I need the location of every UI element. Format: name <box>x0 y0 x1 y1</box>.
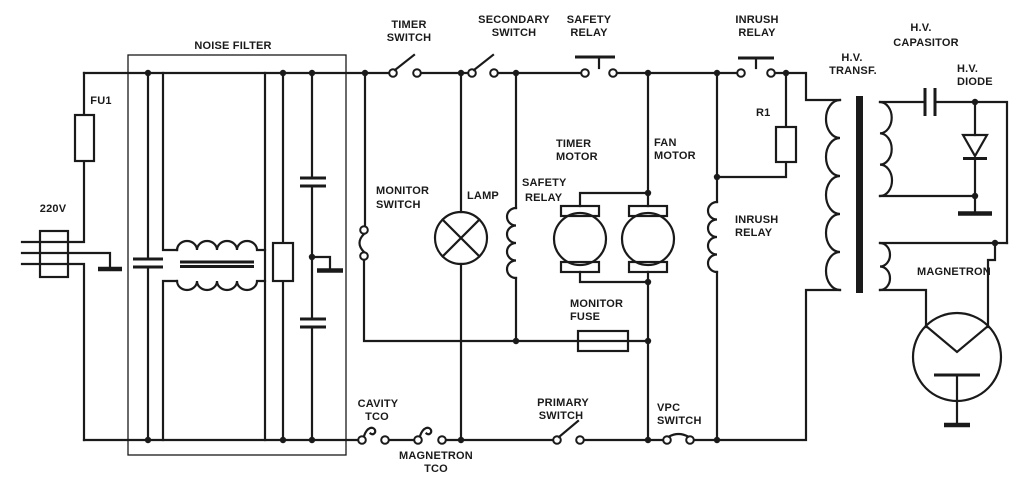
hv-diode: H.V. DIODE <box>957 63 993 214</box>
hv-transformer-label-1: H.V. <box>841 52 862 64</box>
hv-capacitor: H.V. CAPASITOR <box>880 22 1007 243</box>
junction-dot <box>645 338 651 344</box>
junction-dot <box>362 70 368 76</box>
secondary-switch: SECONDARY SWITCH <box>468 14 550 77</box>
motor-mount-top <box>629 206 667 216</box>
magnetron: MAGNETRON <box>880 243 1007 425</box>
choke-bottom-lead <box>163 281 177 440</box>
schematic-page: 220V FU1 NOISE FILTER TIMER SWITCH <box>0 0 1024 483</box>
hv-diode-label-1: H.V. <box>957 63 978 75</box>
magnetron-tco-label-2: TCO <box>424 463 448 475</box>
magnetron-tco-label-1: MAGNETRON <box>399 450 473 462</box>
vpc-switch: VPC SWITCH <box>657 402 702 444</box>
hv-transformer-label-2: TRANSF. <box>829 65 877 77</box>
monitor-fuse-label-1: MONITOR <box>570 298 623 310</box>
fan-motor: FAN MOTOR <box>622 73 696 440</box>
relay-terminal <box>767 69 775 77</box>
tco-blade <box>420 428 431 436</box>
power-input: 220V FU1 <box>22 73 122 440</box>
junction-dot <box>280 437 286 443</box>
hv-diode-label-2: DIODE <box>957 76 993 88</box>
monitor-switch-label-2: SWITCH <box>376 199 421 211</box>
junction-dot <box>280 70 286 76</box>
tco-blade <box>364 428 375 436</box>
junction-dot <box>309 70 315 76</box>
coil-icon <box>507 208 516 278</box>
noise-filter: NOISE FILTER <box>128 40 346 455</box>
cavity-tco-label-1: CAVITY <box>358 398 399 410</box>
monitor-fuse-label-2: FUSE <box>570 311 600 323</box>
inrush-relay-label-2: RELAY <box>738 27 776 39</box>
magnetron-label: MAGNETRON <box>917 266 991 278</box>
cavity-tco-label-2: TCO <box>365 411 389 423</box>
filament-winding <box>880 243 890 290</box>
hv-secondary-winding <box>880 102 892 196</box>
junction-dot <box>458 437 464 443</box>
safety-relay-label-2: RELAY <box>570 27 608 39</box>
choke-top-winding <box>177 241 265 250</box>
switch-blade <box>395 55 414 70</box>
timer-motor-icon <box>554 213 606 265</box>
inrush-relay-label-1: INRUSH <box>735 14 778 26</box>
hv-capacitor-label-1: H.V. <box>910 22 931 34</box>
switch-terminal <box>438 436 446 444</box>
junction-dot <box>645 70 651 76</box>
safety-coil-label-1: SAFETY <box>522 177 567 189</box>
switch-blade <box>474 55 493 70</box>
fuse-label: FU1 <box>90 95 111 107</box>
noise-filter-label: NOISE FILTER <box>194 40 271 52</box>
junction-dot <box>645 437 651 443</box>
lamp-label: LAMP <box>467 190 499 202</box>
fan-motor-icon <box>622 213 674 265</box>
junction-dot <box>972 99 978 105</box>
safety-relay-label-1: SAFETY <box>567 14 612 26</box>
timer-switch-label-2: SWITCH <box>387 32 432 44</box>
magnetron-right-lead <box>988 243 995 327</box>
switch-blade <box>669 434 688 437</box>
secondary-switch-label-2: SWITCH <box>492 27 537 39</box>
capacitor-icon <box>133 259 163 267</box>
motor-mount-top <box>561 206 599 216</box>
primary-switch-label-1: PRIMARY <box>537 397 589 409</box>
timer-switch-label-1: TIMER <box>391 19 426 31</box>
timer-motor-label-1: TIMER <box>556 138 591 150</box>
timer-motor-label-2: MOTOR <box>556 151 598 163</box>
vpc-switch-label-1: VPC <box>657 402 680 414</box>
monitor-switch-label-1: MONITOR <box>376 185 429 197</box>
lamp-cross <box>443 220 480 257</box>
choke-core <box>180 262 254 267</box>
junction-dot <box>145 437 151 443</box>
hv-transformer: H.V. TRANSF. <box>786 52 975 293</box>
magnetron-left-lead <box>880 290 926 327</box>
cap-lead-right <box>937 102 1007 243</box>
hv-capacitor-label-2: CAPASITOR <box>893 37 959 49</box>
r1-label: R1 <box>756 107 770 119</box>
junction-dot <box>309 437 315 443</box>
circuit-diagram: 220V FU1 NOISE FILTER TIMER SWITCH <box>0 0 1024 483</box>
neutral-down <box>68 264 84 440</box>
junction-dot <box>145 70 151 76</box>
relay-terminal <box>609 69 617 77</box>
monitor-fuse: MONITOR FUSE <box>570 298 628 351</box>
switch-terminal <box>576 436 584 444</box>
primary-winding <box>826 100 840 290</box>
inrush-coil-label-2: RELAY <box>735 227 773 239</box>
lamp: LAMP <box>435 73 499 440</box>
switch-blade <box>559 421 578 437</box>
junction-dot <box>714 437 720 443</box>
switch-terminal <box>381 436 389 444</box>
voltage-label: 220V <box>40 203 67 215</box>
relay-terminal <box>581 69 589 77</box>
relay-terminal <box>737 69 745 77</box>
choke-top-lead <box>163 73 177 250</box>
junction-dot <box>972 193 978 199</box>
junction-dot <box>645 279 651 285</box>
choke-bottom-winding <box>177 281 265 290</box>
safety-relay-contact: SAFETY RELAY <box>567 14 617 77</box>
motor-mount-bottom <box>561 262 599 272</box>
switch-terminal <box>490 69 498 77</box>
fuse-body <box>75 115 94 161</box>
transformer-core <box>856 96 863 293</box>
inrush-relay-contact: INRUSH RELAY <box>735 14 778 77</box>
safety-relay-coil: SAFETY RELAY <box>507 73 567 341</box>
ycap-top-icon <box>300 178 326 186</box>
junction-dot <box>714 174 720 180</box>
filter-resistor-body <box>273 243 293 281</box>
coil-icon <box>708 202 717 272</box>
junction-dot <box>783 70 789 76</box>
junction-dot <box>513 338 519 344</box>
r1-resistor-body <box>776 127 796 162</box>
hv-capacitor-icon <box>925 88 935 116</box>
inrush-coil-label-1: INRUSH <box>735 214 778 226</box>
motor-mount-bottom <box>629 262 667 272</box>
magnetron-filament-v <box>926 326 988 352</box>
primary-top-lead <box>786 73 840 100</box>
junction-dot <box>458 70 464 76</box>
fan-motor-label-2: MOTOR <box>654 150 696 162</box>
safety-coil-label-2: RELAY <box>525 192 563 204</box>
timer-switch: TIMER SWITCH <box>387 19 432 77</box>
junction-dot <box>714 70 720 76</box>
vpc-switch-label-2: SWITCH <box>657 415 702 427</box>
cavity-tco: CAVITY TCO <box>358 398 399 444</box>
junction-dot <box>513 70 519 76</box>
switch-terminal <box>413 69 421 77</box>
ycap-bottom-icon <box>300 319 326 327</box>
primary-switch-label-2: SWITCH <box>539 410 584 422</box>
secondary-switch-label-1: SECONDARY <box>478 14 550 26</box>
primary-switch: PRIMARY SWITCH <box>537 397 589 444</box>
diode-triangle-icon <box>963 135 987 156</box>
junction-dot <box>309 254 315 260</box>
junction-dot <box>645 190 651 196</box>
fan-motor-label-1: FAN <box>654 137 677 149</box>
inrush-relay-coil: R1 INRUSH RELAY <box>708 73 796 440</box>
switch-blade <box>360 234 365 252</box>
junction-dot <box>992 240 998 246</box>
